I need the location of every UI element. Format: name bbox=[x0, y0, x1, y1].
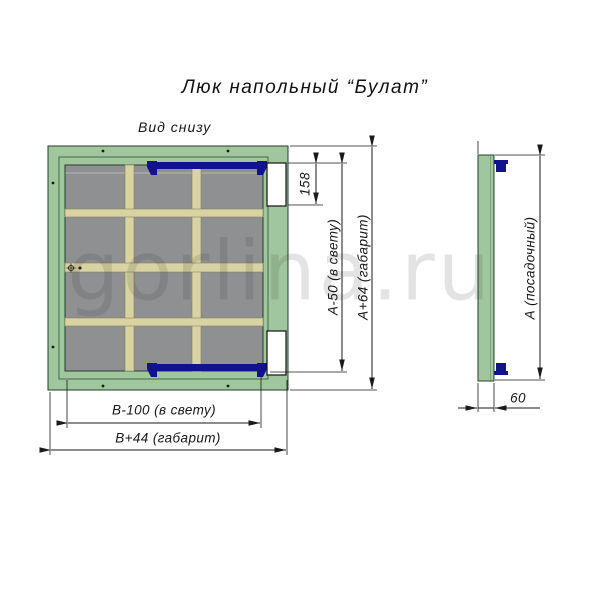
dim-label-overall-width: В+44 (габарит) bbox=[115, 431, 221, 446]
dim-label-seat: А (посадочный) bbox=[523, 217, 538, 320]
hinge-profile-bottom bbox=[494, 363, 508, 375]
rib-horizontal-1 bbox=[65, 209, 263, 217]
screw-icon bbox=[52, 182, 55, 185]
hinge-profile-top bbox=[494, 160, 508, 172]
screw-icon bbox=[102, 150, 105, 153]
hinge-pocket-bottom bbox=[267, 331, 286, 375]
drawing-title: Люк напольный “Булат” bbox=[182, 77, 428, 99]
watermark: gorlina.ru bbox=[67, 225, 492, 320]
dim-label-overall-height: А+64 (габарит) bbox=[356, 214, 371, 320]
view-label: Вид снизу bbox=[138, 119, 211, 135]
hinge-pocket-top bbox=[267, 163, 286, 206]
dim-label-clear-width: В-100 (в свету) bbox=[112, 403, 216, 418]
dim-label-thickness: 60 bbox=[510, 391, 526, 406]
screw-icon bbox=[52, 346, 55, 349]
screw-icon bbox=[227, 385, 230, 388]
screw-icon bbox=[227, 150, 230, 153]
dim-label-clear-height: А-50 (в свету) bbox=[326, 219, 341, 315]
screw-icon bbox=[102, 385, 105, 388]
drawing-canvas: gorlina.ru Люк напольный “Булат” Вид сни… bbox=[0, 0, 600, 600]
dim-label-158: 158 bbox=[298, 172, 313, 196]
